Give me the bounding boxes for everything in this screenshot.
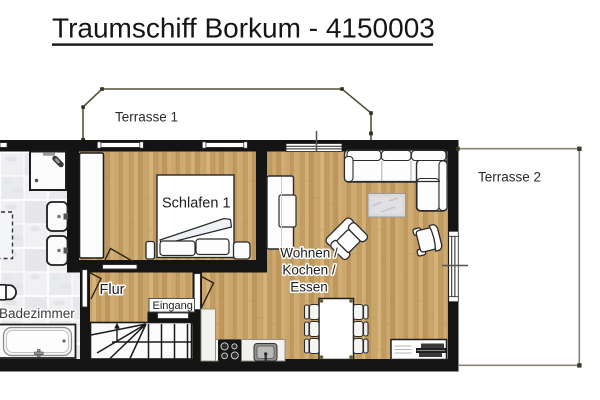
svg-text:Essen: Essen <box>290 280 328 295</box>
svg-text:Kochen /: Kochen / <box>282 263 336 278</box>
svg-text:Traumschiff Borkum - 4150003: Traumschiff Borkum - 4150003 <box>52 13 435 44</box>
svg-text:Schlafen 1: Schlafen 1 <box>162 196 231 212</box>
svg-text:Flur: Flur <box>100 282 125 298</box>
svg-text:Eingang: Eingang <box>153 300 193 312</box>
svg-text:Terrasse 2: Terrasse 2 <box>478 170 541 185</box>
svg-text:Terrasse 1: Terrasse 1 <box>115 110 178 125</box>
svg-text:Wohnen /: Wohnen / <box>280 246 338 261</box>
svg-text:Badezimmer: Badezimmer <box>0 306 75 321</box>
